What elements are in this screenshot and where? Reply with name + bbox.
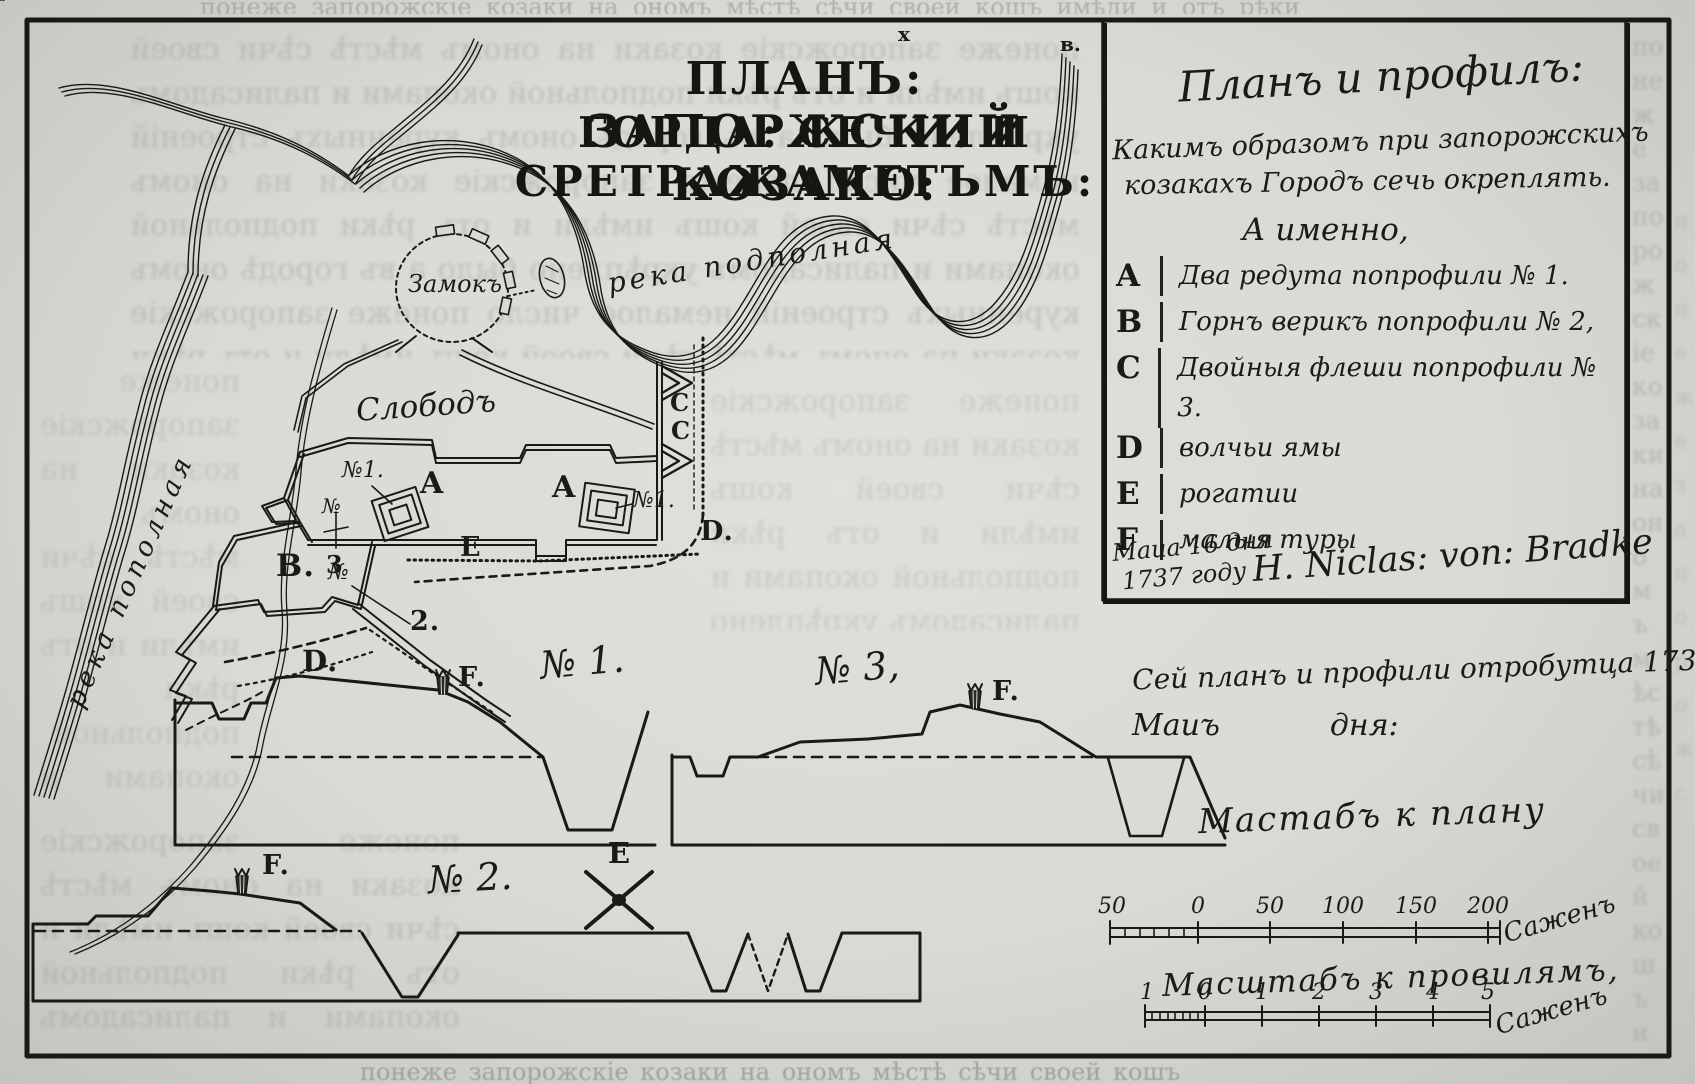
profile3-label: № 3, bbox=[813, 642, 901, 693]
legend-item-b: B Горнъ верикъ попрофили № 2, bbox=[1116, 302, 1611, 348]
title-superscript-left: х bbox=[898, 22, 910, 46]
legend-text-d: волчьи ямы bbox=[1160, 428, 1342, 468]
marker-d-east: D. bbox=[700, 516, 734, 547]
legend-text-c: Двойныя флеши попрофили № 3. bbox=[1158, 348, 1611, 428]
scale-plan-tick-5: 200 bbox=[1467, 894, 1509, 919]
note-line2-day: дня: bbox=[1330, 708, 1399, 743]
note-line2-month: Маиъ bbox=[1132, 708, 1220, 743]
scale-profile-tick-6: 5 bbox=[1481, 980, 1495, 1005]
legend-key-d: D bbox=[1116, 428, 1160, 468]
legend-key-b: B bbox=[1116, 302, 1160, 342]
legend-key-e: E bbox=[1116, 474, 1160, 514]
scanned-book-page: { "title": { "line1": "ПЛАНЪ: ЗАПОРЖСКИЙ… bbox=[0, 0, 1695, 1084]
redoubt-east bbox=[579, 483, 635, 534]
profile3-f-label: F. bbox=[992, 676, 1020, 707]
gabion-icon-profile2 bbox=[235, 869, 249, 893]
legend-item-d: D волчьи ямы bbox=[1116, 428, 1611, 474]
profile-1 bbox=[175, 676, 655, 845]
profile-2 bbox=[33, 888, 920, 1001]
rogatka-cross-icon bbox=[586, 872, 652, 928]
marker-c-upper: C bbox=[670, 388, 690, 417]
scale-plan-tick-2: 50 bbox=[1256, 894, 1284, 919]
legend-text-b: Горнъ верикъ попрофили № 2, bbox=[1160, 302, 1594, 342]
note-line2: Маиъдня: bbox=[1132, 708, 1399, 743]
scale-plan-tick-3: 100 bbox=[1322, 894, 1364, 919]
scale-profile-tick-1: 0 bbox=[1198, 980, 1212, 1005]
marker-c-lower: C bbox=[671, 416, 691, 445]
legend-item-c: C Двойныя флеши попрофили № 3. bbox=[1116, 348, 1611, 428]
marker-d-west: D. bbox=[302, 644, 338, 678]
legend-item-a: A Два редута попрофили № 1. bbox=[1116, 256, 1611, 302]
profile1-f-label: F. bbox=[458, 662, 486, 693]
scale-profile-tick-2: 1 bbox=[1255, 980, 1269, 1005]
legend-item-e: E рогатии bbox=[1116, 474, 1611, 520]
scale-plan-tick-4: 150 bbox=[1395, 894, 1437, 919]
marker-n1-east: №1. bbox=[633, 488, 675, 513]
title-superscript-right: в. bbox=[1060, 32, 1081, 56]
scale-bar-profile bbox=[1145, 1005, 1490, 1027]
marker-a-west: A bbox=[420, 466, 444, 501]
scale-profile-tick-3: 2 bbox=[1312, 980, 1326, 1005]
plate-title-line2: ГОРДА: СЕЧИ: И СРЕТРАЖАМЕТЪМЪ: bbox=[505, 108, 1105, 206]
marker-2: 2. bbox=[410, 606, 440, 637]
marker-n1-west: №1. bbox=[342, 458, 384, 483]
marker-no-2: № bbox=[328, 560, 349, 585]
scale-profile-tick-4: 3 bbox=[1369, 980, 1383, 1005]
marker-e: E bbox=[460, 532, 482, 563]
scale-profile-tick-0: 1 bbox=[1140, 980, 1154, 1005]
marker-a-east: A bbox=[552, 470, 576, 505]
castle-label: Замокъ bbox=[408, 270, 502, 298]
profile2-f-label: F. bbox=[262, 850, 290, 881]
legend-text-a: Два редута попрофили № 1. bbox=[1160, 256, 1569, 296]
scale-plan-tick-1: 0 bbox=[1191, 894, 1205, 919]
legend-key-c: C bbox=[1116, 348, 1158, 388]
marker-no-3: № bbox=[322, 494, 341, 518]
scale-plan-tick-0: 50 bbox=[1098, 894, 1126, 919]
profile2-e-label: E bbox=[608, 836, 631, 870]
marker-b: B. bbox=[276, 548, 315, 584]
legend-items: A Два редута попрофили № 1. B Горнъ вери… bbox=[1116, 256, 1611, 566]
river-island bbox=[536, 256, 569, 301]
legend-text-e: рогатии bbox=[1160, 474, 1298, 514]
scale-bar-plan bbox=[1110, 921, 1500, 944]
gabion-icon-profile1 bbox=[436, 670, 450, 694]
profile1-label: № 1. bbox=[538, 636, 626, 687]
gabion-icon-profile3 bbox=[968, 684, 982, 708]
legend-items-heading: А именно, bbox=[1242, 212, 1409, 248]
profile2-label: № 2. bbox=[427, 854, 513, 902]
scale-profile-tick-5: 4 bbox=[1426, 980, 1440, 1005]
legend-key-a: A bbox=[1116, 256, 1160, 296]
